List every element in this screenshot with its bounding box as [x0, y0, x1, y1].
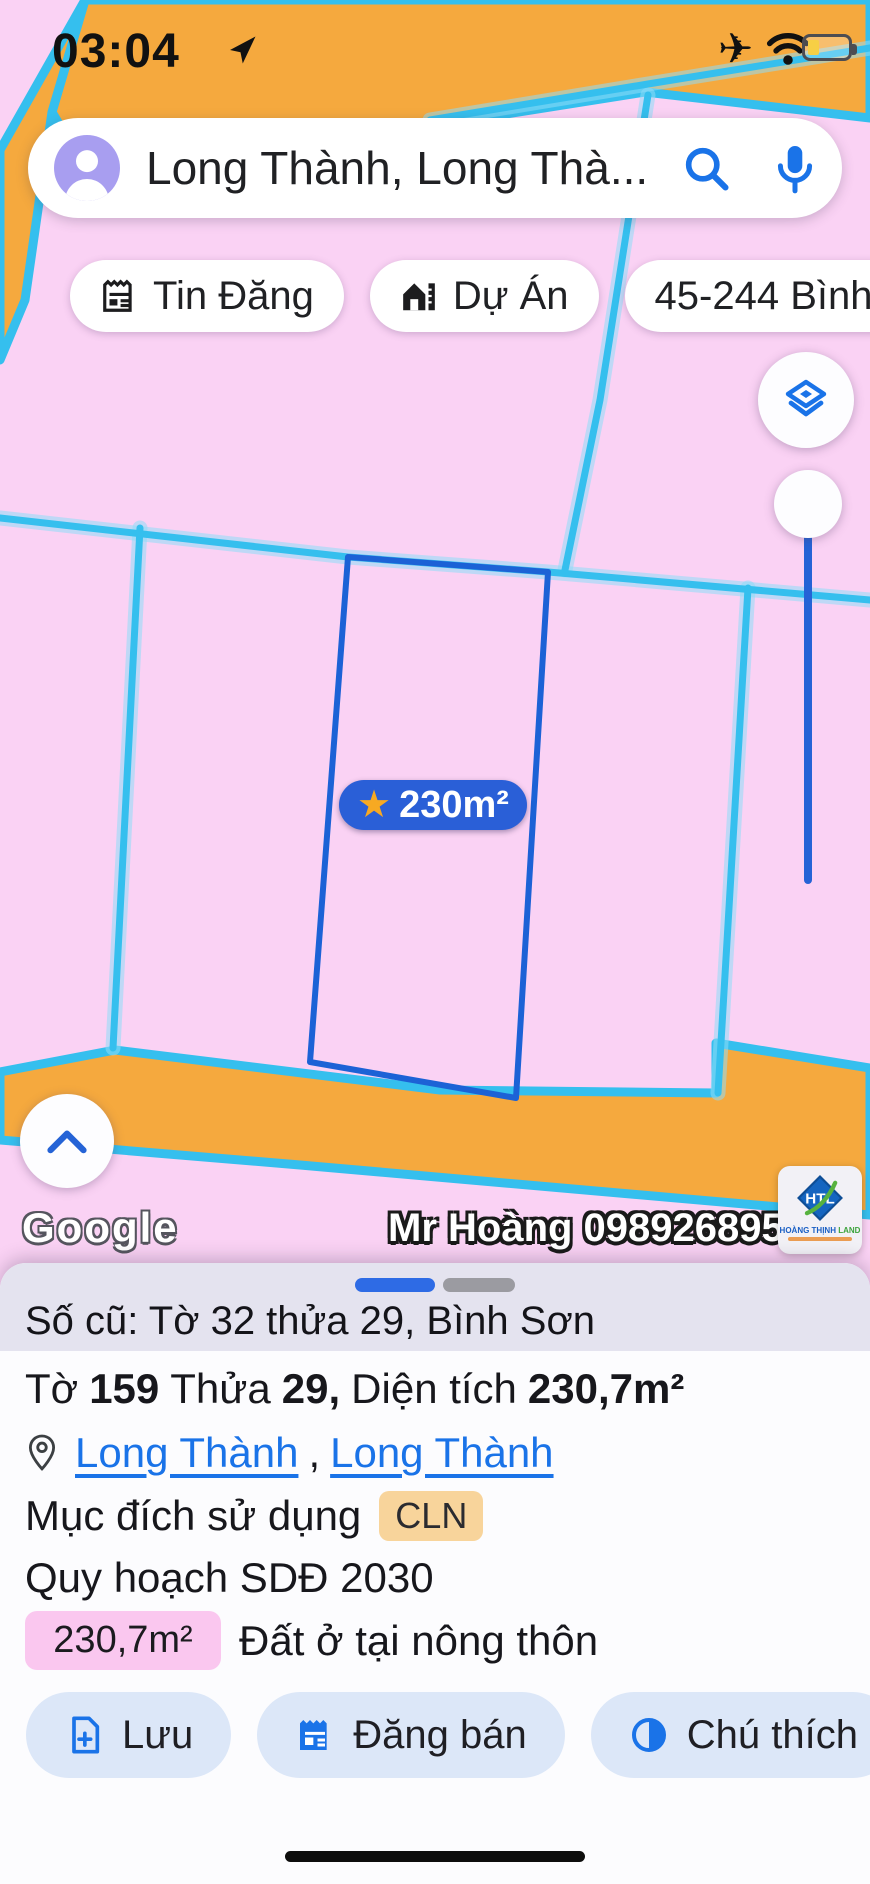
search-icon[interactable] — [680, 142, 732, 194]
handle-active — [355, 1278, 435, 1292]
purpose-label: Mục đích sử dụng — [25, 1492, 361, 1540]
handle-inactive — [443, 1278, 515, 1292]
brand-logo: HTL HOÀNG THỊNH LAND — [778, 1166, 862, 1254]
chip-binh-son[interactable]: 45-244 Bình Sơn — [625, 260, 870, 332]
google-watermark: Google — [22, 1204, 179, 1252]
status-time: 03:04 — [52, 24, 180, 79]
label-thua: Thửa — [170, 1365, 271, 1413]
mic-icon[interactable] — [770, 142, 820, 198]
map-pin-icon — [25, 1433, 59, 1473]
label-area: Diện tích — [351, 1365, 517, 1413]
brand-tagline — [788, 1237, 852, 1241]
home-indicator[interactable] — [285, 1851, 585, 1862]
zoom-slider-track[interactable] — [804, 534, 812, 884]
post-sale-button-label: Đăng bán — [353, 1713, 526, 1758]
zoom-slider-knob[interactable] — [774, 470, 842, 538]
airplane-mode-icon: ✈ — [718, 24, 753, 73]
save-file-icon — [64, 1715, 104, 1755]
search-bar[interactable]: Long Thành, Long Thà... — [28, 118, 842, 218]
brand-diamond-icon: HTL — [794, 1172, 846, 1224]
label-to: Tờ — [25, 1365, 78, 1413]
sheet-drag-handle[interactable] — [355, 1278, 515, 1292]
star-icon: ★ — [357, 786, 391, 824]
value-plot-number: 29, — [282, 1365, 340, 1413]
bottom-sheet: Số cũ: Tờ 32 thửa 29, Bình Sơn Tờ 159 Th… — [0, 1263, 870, 1884]
planning-text: Quy hoạch SDĐ 2030 — [25, 1554, 434, 1602]
agent-watermark: Mr Hoàng 0989268955 — [388, 1206, 806, 1251]
parcel-area-value: 230m² — [399, 784, 509, 827]
parcel-info-row: Tờ 159 Thửa 29, Diện tích 230,7m² — [25, 1365, 684, 1413]
area-description: Đất ở tại nông thôn — [239, 1617, 598, 1665]
post-sale-button[interactable]: Đăng bán — [257, 1692, 564, 1778]
location-separator: , — [308, 1429, 320, 1477]
battery-level — [808, 40, 819, 55]
search-input[interactable]: Long Thành, Long Thà... — [146, 118, 666, 218]
save-button[interactable]: Lưu — [26, 1692, 231, 1778]
chip-tin-dang[interactable]: Tin Đăng — [70, 260, 344, 332]
legend-button[interactable]: Chú thích — [591, 1692, 870, 1778]
person-icon — [54, 135, 120, 201]
location-link-district[interactable]: Long Thành — [330, 1429, 553, 1477]
old-reference-row: Số cũ: Tờ 32 thửa 29, Bình Sơn — [25, 1299, 595, 1344]
parcel-area-label[interactable]: ★ 230m² — [339, 780, 527, 830]
chevron-up-icon — [45, 1126, 89, 1156]
battery-icon — [802, 34, 852, 61]
chip-du-an[interactable]: Dự Án — [370, 260, 599, 332]
area-row: 230,7m² Đất ở tại nông thôn — [25, 1611, 598, 1670]
location-arrow-icon — [224, 32, 260, 68]
listing-grid-icon — [295, 1715, 335, 1755]
location-row: Long Thành , Long Thành — [25, 1429, 554, 1477]
planning-row: Quy hoạch SDĐ 2030 — [25, 1554, 434, 1602]
listing-icon — [100, 277, 138, 315]
area-badge: 230,7m² — [25, 1611, 221, 1670]
chip-label: Dự Án — [453, 274, 569, 319]
value-area: 230,7m² — [528, 1365, 684, 1413]
chip-label: Tin Đăng — [153, 274, 314, 319]
legend-button-label: Chú thích — [687, 1713, 858, 1758]
purpose-badge: CLN — [379, 1491, 483, 1541]
project-house-icon — [400, 277, 438, 315]
purpose-row: Mục đích sử dụng CLN — [25, 1491, 483, 1541]
old-reference-text: Số cũ: Tờ 32 thửa 29, Bình Sơn — [25, 1299, 595, 1344]
save-button-label: Lưu — [122, 1713, 193, 1758]
battery-cap — [852, 44, 857, 55]
chip-label: 45-244 Bình Sơn — [655, 274, 870, 319]
action-buttons-row: Lưu Đăng bán Chú thích — [26, 1692, 870, 1778]
avatar[interactable] — [54, 135, 120, 201]
brand-name: HOÀNG THỊNH LAND — [780, 1226, 861, 1235]
app-screen: ★ 230m² 03:04 ✈ Long Thành, Long Thà... — [0, 0, 870, 1884]
location-link-ward[interactable]: Long Thành — [75, 1429, 298, 1477]
chip-row: Tin Đăng Dự Án 45-244 Bình Sơn — [70, 260, 870, 332]
half-circle-icon — [629, 1715, 669, 1755]
value-sheet-number: 159 — [89, 1365, 159, 1413]
layers-icon — [782, 376, 830, 424]
map-layers-button[interactable] — [758, 352, 854, 448]
expand-sheet-button[interactable] — [20, 1094, 114, 1188]
